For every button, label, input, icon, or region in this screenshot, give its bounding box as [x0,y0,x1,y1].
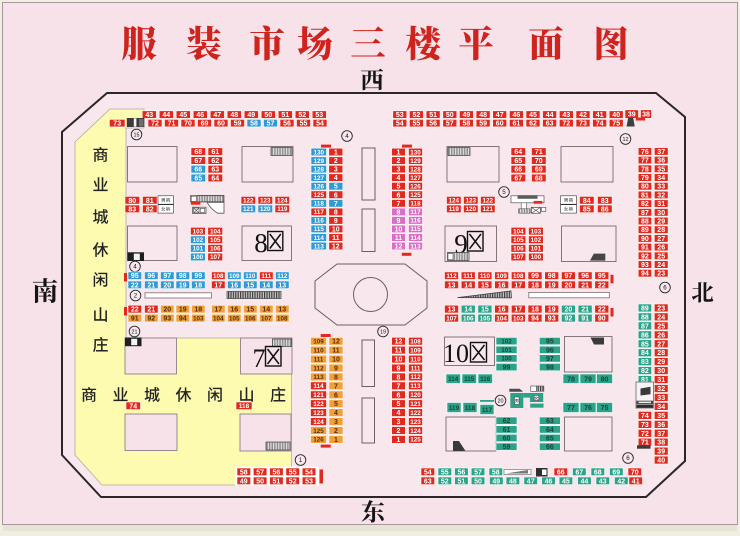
svg-text:48: 48 [230,112,238,119]
svg-text:65: 65 [194,175,202,182]
svg-text:73: 73 [641,422,649,429]
svg-text:11: 11 [332,235,340,242]
svg-text:110: 110 [313,347,324,354]
svg-text:79: 79 [641,175,649,182]
svg-text:66: 66 [546,444,554,451]
svg-text:17: 17 [514,307,522,314]
svg-text:122: 122 [313,401,324,408]
svg-text:103: 103 [531,228,542,235]
svg-text:105: 105 [210,237,221,244]
svg-text:30: 30 [657,210,665,217]
svg-text:13: 13 [278,307,286,314]
svg-text:122: 122 [483,198,494,205]
svg-text:104: 104 [213,315,224,322]
svg-text:2: 2 [397,158,401,165]
svg-text:59: 59 [479,121,487,128]
svg-text:92: 92 [641,253,649,260]
svg-text:118: 118 [314,201,325,208]
svg-text:78: 78 [567,376,575,383]
svg-text:123: 123 [410,419,421,426]
svg-text:44: 44 [162,112,170,119]
svg-text:56: 56 [458,469,466,476]
svg-text:7: 7 [397,201,401,208]
svg-text:96: 96 [581,273,589,280]
svg-text:106: 106 [210,246,221,253]
svg-text:58: 58 [492,469,500,476]
svg-text:63: 63 [546,121,554,128]
svg-text:126: 126 [314,184,325,191]
svg-text:56: 56 [429,121,437,128]
svg-text:62: 62 [529,121,537,128]
svg-text:35: 35 [657,166,665,173]
svg-text:126: 126 [410,184,421,191]
svg-text:53: 53 [305,478,313,485]
svg-text:89: 89 [641,306,649,313]
svg-text:65: 65 [514,158,522,165]
svg-text:16: 16 [230,307,238,314]
svg-text:86: 86 [641,332,649,339]
svg-text:16: 16 [498,307,506,314]
svg-text:118: 118 [410,201,421,208]
svg-text:82: 82 [641,201,649,208]
svg-text:18: 18 [194,307,202,314]
svg-text:93: 93 [641,262,649,269]
svg-text:64: 64 [514,149,522,156]
svg-text:48: 48 [479,112,487,119]
svg-text:41: 41 [632,478,640,485]
svg-text:76: 76 [584,405,592,412]
svg-text:121: 121 [243,206,254,213]
svg-text:10: 10 [443,339,469,368]
svg-text:60: 60 [503,436,511,443]
svg-text:7: 7 [397,383,401,390]
svg-text:15: 15 [246,282,254,289]
svg-text:123: 123 [260,198,271,205]
svg-text:37: 37 [657,149,665,156]
svg-text:2: 2 [334,428,338,435]
svg-text:99: 99 [194,273,202,280]
svg-text:114: 114 [448,376,459,383]
svg-text:63: 63 [546,418,554,425]
svg-text:105: 105 [513,237,524,244]
svg-text:111: 111 [314,356,324,363]
svg-text:75: 75 [601,405,609,412]
svg-text:28: 28 [657,350,665,357]
svg-text:14: 14 [464,307,472,314]
svg-text:3: 3 [397,419,401,426]
svg-text:16: 16 [230,282,238,289]
svg-text:24: 24 [657,262,665,269]
svg-text:41: 41 [596,112,604,119]
svg-text:18: 18 [531,307,539,314]
svg-text:55: 55 [289,469,297,476]
svg-text:91: 91 [581,316,589,323]
svg-text:125: 125 [410,192,421,199]
svg-text:98: 98 [179,273,187,280]
svg-text:29: 29 [657,359,665,366]
svg-text:27: 27 [657,236,665,243]
svg-text:81: 81 [146,198,154,205]
svg-text:4: 4 [133,264,137,271]
svg-text:87: 87 [641,210,649,217]
svg-text:19: 19 [179,282,187,289]
svg-text:32: 32 [657,386,665,393]
svg-text:69: 69 [201,121,209,128]
svg-text:94: 94 [531,316,539,323]
svg-text:35: 35 [657,413,665,420]
svg-text:21: 21 [147,307,155,314]
svg-text:4: 4 [345,133,349,140]
svg-text:108: 108 [410,339,421,346]
svg-text:3: 3 [334,167,338,174]
svg-text:115: 115 [464,376,475,383]
svg-text:87: 87 [641,323,649,330]
svg-text:12: 12 [395,339,403,346]
svg-text:97: 97 [546,356,554,363]
svg-text:108: 108 [513,273,524,280]
svg-text:19: 19 [548,282,556,289]
svg-text:99: 99 [503,365,511,372]
svg-text:52: 52 [289,478,297,485]
svg-text:14: 14 [262,307,270,314]
svg-text:71: 71 [535,149,543,156]
svg-text:101: 101 [501,347,512,354]
svg-text:102: 102 [193,237,204,244]
svg-text:111: 111 [261,273,271,280]
svg-text:61: 61 [211,149,219,156]
svg-text:127: 127 [314,175,325,182]
svg-text:31: 31 [657,377,665,384]
svg-text:18: 18 [531,282,539,289]
svg-text:14: 14 [262,282,270,289]
svg-text:42: 42 [579,112,587,119]
svg-text:4: 4 [334,175,338,182]
svg-text:57: 57 [267,121,275,128]
svg-text:7: 7 [334,201,338,208]
svg-text:7: 7 [253,344,266,373]
svg-text:114: 114 [313,383,324,390]
svg-text:57: 57 [474,469,482,476]
svg-text:124: 124 [313,419,324,426]
svg-text:9: 9 [397,218,401,225]
svg-text:8: 8 [397,374,401,381]
svg-text:66: 66 [557,469,565,476]
svg-text:62: 62 [211,158,219,165]
svg-text:45: 45 [179,112,187,119]
svg-text:106: 106 [463,315,474,322]
svg-text:3: 3 [334,419,338,426]
svg-text:54: 54 [316,121,324,128]
svg-text:112: 112 [410,374,421,381]
svg-text:106: 106 [245,315,256,322]
svg-text:104: 104 [513,228,524,235]
svg-text:13: 13 [448,307,456,314]
svg-text:96: 96 [147,273,155,280]
svg-text:122: 122 [243,198,254,205]
svg-text:76: 76 [641,149,649,156]
svg-text:110: 110 [245,273,256,280]
svg-text:116: 116 [410,218,421,225]
svg-text:60: 60 [496,121,504,128]
svg-text:45: 45 [529,112,537,119]
svg-text:58: 58 [463,121,471,128]
svg-text:125: 125 [314,192,325,199]
svg-text:84: 84 [583,198,591,205]
svg-text:102: 102 [501,338,512,345]
svg-text:32: 32 [657,192,665,199]
svg-text:54: 54 [305,469,313,476]
svg-text:61: 61 [503,427,511,434]
svg-text:17: 17 [514,282,522,289]
svg-text:110: 110 [410,356,421,363]
svg-text:121: 121 [483,206,494,213]
svg-text:55: 55 [300,121,308,128]
svg-text:115: 115 [410,226,421,233]
svg-text:93: 93 [548,316,556,323]
svg-text:5: 5 [334,401,338,408]
svg-text:99: 99 [531,273,539,280]
svg-text:44: 44 [546,112,554,119]
svg-text:59: 59 [234,121,242,128]
svg-text:26: 26 [657,332,665,339]
svg-text:38: 38 [657,440,665,447]
svg-text:40: 40 [612,112,620,119]
svg-text:6: 6 [626,455,630,462]
svg-text:28: 28 [657,227,665,234]
svg-text:93: 93 [163,316,171,323]
svg-text:117: 117 [314,209,325,216]
svg-text:20: 20 [498,399,504,405]
svg-text:51: 51 [273,478,281,485]
svg-text:36: 36 [657,422,665,429]
svg-text:4: 4 [397,410,401,417]
svg-text:73: 73 [113,121,121,128]
svg-text:70: 70 [184,121,192,128]
svg-text:51: 51 [429,112,437,119]
svg-text:121: 121 [410,401,421,408]
svg-text:56: 56 [283,121,291,128]
svg-text:113: 113 [410,243,421,250]
svg-text:103: 103 [513,315,524,322]
svg-text:17: 17 [214,282,222,289]
svg-text:10: 10 [395,227,403,234]
svg-text:100: 100 [193,254,204,261]
svg-text:66: 66 [514,167,522,174]
svg-text:119: 119 [449,206,460,213]
svg-text:50: 50 [256,478,264,485]
svg-text:111: 111 [411,365,421,372]
svg-text:6: 6 [663,285,667,292]
svg-text:34: 34 [657,175,665,182]
svg-text:67: 67 [514,175,522,182]
svg-text:72: 72 [562,121,570,128]
svg-text:97: 97 [565,273,573,280]
svg-text:13: 13 [278,282,286,289]
svg-text:94: 94 [641,271,649,278]
svg-text:82: 82 [641,368,649,375]
svg-text:17: 17 [214,307,222,314]
svg-text:83: 83 [128,206,136,213]
svg-text:48: 48 [509,478,517,485]
svg-text:111: 111 [463,273,473,280]
svg-text:100: 100 [501,356,512,363]
svg-text:52: 52 [413,112,421,119]
svg-text:78: 78 [641,166,649,173]
svg-text:47: 47 [527,478,535,485]
svg-text:15: 15 [246,307,254,314]
svg-text:95: 95 [131,273,139,280]
svg-text:118: 118 [239,403,250,410]
svg-text:69: 69 [535,167,543,174]
svg-text:7: 7 [334,383,338,390]
svg-text:49: 49 [247,112,255,119]
svg-text:24: 24 [657,314,665,321]
svg-text:108: 108 [277,315,288,322]
svg-text:36: 36 [657,158,665,165]
svg-text:113: 113 [314,243,325,250]
svg-text:82: 82 [146,206,154,213]
svg-text:13: 13 [448,282,456,289]
svg-text:123: 123 [466,198,477,205]
svg-text:114: 114 [314,235,325,242]
svg-text:120: 120 [410,392,421,399]
svg-text:8: 8 [334,374,338,381]
svg-text:20: 20 [163,307,171,314]
svg-text:60: 60 [217,121,225,128]
svg-text:6: 6 [397,192,401,199]
svg-text:59: 59 [503,444,511,451]
svg-text:120: 120 [260,206,271,213]
svg-text:80: 80 [641,184,649,191]
svg-text:15: 15 [134,133,140,139]
svg-text:83: 83 [641,359,649,366]
svg-text:6: 6 [334,392,338,399]
svg-text:88: 88 [641,314,649,321]
svg-text:83: 83 [601,198,609,205]
svg-text:54: 54 [396,121,404,128]
svg-text:100: 100 [531,254,542,261]
svg-text:46: 46 [196,112,204,119]
svg-text:45: 45 [562,478,570,485]
svg-text:129: 129 [410,158,421,165]
svg-text:90: 90 [598,316,606,323]
svg-text:103: 103 [193,228,204,235]
svg-text:1: 1 [299,457,303,464]
svg-text:51: 51 [281,112,289,119]
svg-text:30: 30 [657,368,665,375]
svg-text:64: 64 [546,427,554,434]
svg-text:37: 37 [657,431,665,438]
svg-text:34: 34 [657,404,665,411]
svg-text:124: 124 [277,198,288,205]
svg-text:112: 112 [313,365,324,372]
svg-text:67: 67 [194,158,202,165]
svg-text:119: 119 [277,206,288,213]
svg-text:11: 11 [395,348,403,355]
svg-text:77: 77 [567,405,575,412]
svg-text:8: 8 [397,209,401,216]
svg-text:9: 9 [397,366,401,373]
svg-text:5: 5 [334,184,338,191]
svg-text:40: 40 [657,458,665,465]
svg-text:92: 92 [565,316,573,323]
svg-text:94: 94 [179,316,187,323]
svg-text:27: 27 [657,341,665,348]
svg-text:109: 109 [410,347,421,354]
svg-text:103: 103 [193,315,204,322]
svg-text:105: 105 [229,315,240,322]
svg-text:5: 5 [397,401,401,408]
svg-text:88: 88 [641,219,649,226]
svg-text:3: 3 [397,167,401,174]
svg-text:57: 57 [256,469,264,476]
svg-text:95: 95 [598,273,606,280]
svg-text:115: 115 [314,226,325,233]
svg-text:22: 22 [131,282,139,289]
svg-text:104: 104 [496,315,507,322]
svg-text:18: 18 [194,282,202,289]
svg-text:47: 47 [213,112,221,119]
svg-text:79: 79 [584,376,592,383]
svg-text:57: 57 [446,121,454,128]
svg-text:75: 75 [612,121,620,128]
svg-text:68: 68 [535,175,543,182]
svg-text:110: 110 [480,273,491,280]
svg-text:58: 58 [250,121,258,128]
svg-text:55: 55 [441,469,449,476]
svg-text:86: 86 [601,206,609,213]
svg-text:125: 125 [410,437,421,444]
svg-text:101: 101 [193,246,204,253]
svg-text:128: 128 [314,166,325,173]
svg-text:15: 15 [481,307,489,314]
svg-text:11: 11 [395,235,403,242]
svg-text:80: 80 [128,198,136,205]
svg-text:107: 107 [446,315,457,322]
svg-text:68: 68 [194,149,202,156]
svg-text:54: 54 [424,469,432,476]
svg-text:53: 53 [315,112,323,119]
svg-text:8: 8 [254,228,268,258]
svg-text:46: 46 [513,112,521,119]
svg-text:52: 52 [441,478,449,485]
svg-text:12: 12 [623,137,629,143]
svg-text:63: 63 [211,167,219,174]
svg-text:62: 62 [503,418,511,425]
svg-text:47: 47 [496,112,504,119]
svg-text:26: 26 [657,245,665,252]
svg-text:120: 120 [466,206,477,213]
svg-text:118: 118 [465,405,476,412]
svg-text:127: 127 [410,175,421,182]
svg-text:25: 25 [657,323,665,330]
svg-text:1: 1 [397,150,401,157]
svg-text:109: 109 [496,273,507,280]
svg-text:4: 4 [397,175,401,182]
svg-text:58: 58 [240,469,248,476]
svg-text:107: 107 [210,254,221,261]
svg-text:8: 8 [334,209,338,216]
svg-text:53: 53 [396,112,404,119]
svg-text:43: 43 [145,112,153,119]
svg-text:80: 80 [601,376,609,383]
svg-text:91: 91 [131,316,139,323]
svg-text:33: 33 [657,184,665,191]
svg-text:19: 19 [380,330,386,336]
svg-text:112: 112 [446,273,457,280]
svg-text:130: 130 [410,149,421,156]
svg-text:49: 49 [492,478,500,485]
